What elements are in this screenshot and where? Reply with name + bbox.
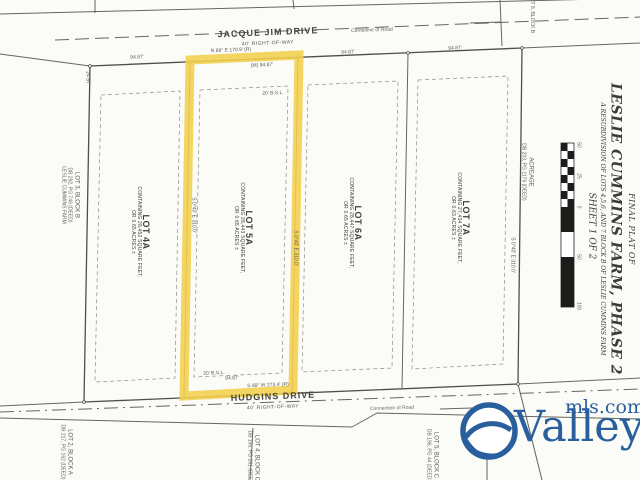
bearing-divider-left: S 0°40' E 310.0' xyxy=(190,197,195,233)
pin-icon xyxy=(521,47,524,50)
lot-7a-label: LOT 7A CONTAINING 27,434 SQUARE FEET, OR… xyxy=(450,172,470,263)
parcel-southwest-name: LOT 2, BLOCK A xyxy=(65,424,72,479)
road-top-south-edge-west xyxy=(0,54,90,66)
lot-6a-area: CONTAINING 28,447 SQUARE FEET, xyxy=(347,177,352,268)
parcel-southwest-deed: DB 217, PG 162 (DEED) xyxy=(59,424,65,479)
parcel-east-acreage: ACREAGE DB 203, PG 1179 (DEED) xyxy=(520,143,533,200)
parcel-east-name: ACREAGE xyxy=(526,143,533,200)
dim-top-lot5a-measured: (M) 94.87' xyxy=(251,63,274,69)
pin-icon xyxy=(517,383,520,386)
lot-5a-area: CONTAINING 28,443 SQUARE FEET, xyxy=(238,182,243,273)
pin-icon xyxy=(407,52,410,55)
parcel-west: LOT 3, BLOCK B DB 292, PG 746 (DEED) LES… xyxy=(60,166,79,224)
road-top-north-edge xyxy=(0,0,640,14)
parcel-northeast-name: LOT 8, BLOCK B xyxy=(529,0,535,33)
parcel-south-east: LOT 5, BLOCK C DB 196, PG 44 (DEED) xyxy=(425,429,438,480)
dim-west-edge-tick: 24.97' xyxy=(84,71,89,84)
lot-6a-label: LOT 6A CONTAINING 28,447 SQUARE FEET, OR… xyxy=(342,177,362,268)
title-final-plat-of: FINAL PLAT OF xyxy=(627,193,635,265)
setback-label-top: 20' B.S.L. xyxy=(262,91,284,97)
lot-7a-name: LOT 7A xyxy=(461,172,470,263)
dim-bottom-lot5a-len: 94.87' xyxy=(225,376,239,382)
setback-label-bottom: 20' B.S.L. xyxy=(203,371,225,377)
bearing-divider-right: S 0°40' E 310.0' xyxy=(292,230,297,266)
lot-5a-label: LOT 5A CONTAINING 28,443 SQUARE FEET, OR… xyxy=(233,182,253,273)
title-subdivision-name: LESLIE CUMMINS FARM, PHASE 2 xyxy=(608,83,623,375)
scale-tick-4: 100 xyxy=(575,302,580,310)
parcel-south-mid-deed: DB 195, PG 281 (DEED) xyxy=(246,430,252,480)
plat-image: JACQUE JIM DRIVE 40' RIGHT-OF-WAY Center… xyxy=(0,0,640,480)
parcel-south-east-deed: DB 196, PG 44 (DEED) xyxy=(425,429,431,480)
north-stub-2 xyxy=(293,0,294,9)
road-bottom-north-edge-west xyxy=(0,402,84,406)
dim-top-lot7a: 94.87' xyxy=(448,46,462,52)
bearing-east-boundary: S 0°40' E 310.0' xyxy=(509,237,514,273)
lot-5a-name: LOT 5A xyxy=(244,182,253,273)
valleymls-logo-suffix[interactable]: mls.com xyxy=(565,398,640,417)
north-stub-3 xyxy=(500,0,502,46)
road-bottom-south-edge-west xyxy=(0,418,352,427)
parcel-west-deed: DB 292, PG 746 (DEED) xyxy=(66,166,72,224)
divider-lot6a-lot7a xyxy=(402,53,408,389)
road-top-south-edge-east xyxy=(522,43,640,48)
parcel-northeast: LOT 8, BLOCK B xyxy=(529,0,535,33)
dim-top-lot4a: 94.87' xyxy=(130,55,144,61)
parcel-south-east-name: LOT 5, BLOCK C xyxy=(431,429,438,480)
lot-6a-name: LOT 6A xyxy=(353,177,362,268)
parcel-west-extra: LESLIE CUMMINS FARM xyxy=(60,166,66,224)
parcel-south-mid: LOT 4, BLOCK C DB 195, PG 281 (DEED) xyxy=(246,430,259,480)
parcel-west-name: LOT 3, BLOCK B xyxy=(72,166,79,224)
pin-icon xyxy=(89,65,92,68)
dim-top-lot6a: 94.87' xyxy=(341,50,355,56)
south-tick-line xyxy=(440,408,472,409)
road-bottom-north-edge-east xyxy=(518,378,640,384)
scale-tick-3: 50 xyxy=(575,254,580,260)
pin-icon xyxy=(83,401,86,404)
parcel-southwest: LOT 2, BLOCK A DB 217, PG 162 (DEED) xyxy=(59,424,72,479)
scale-bar xyxy=(561,143,574,307)
parcel-south-mid-name: LOT 4, BLOCK C xyxy=(252,430,259,480)
title-sheet-number: SHEET 1 OF 2 xyxy=(586,193,595,260)
scale-tick-0: 50 xyxy=(575,142,580,148)
title-resubdivision-note: A RESUBDIVISION OF LOTS 4,5,6, AND 7 BLO… xyxy=(599,102,605,355)
scale-tick-1: 25 xyxy=(575,173,580,179)
scale-tick-2: 0 xyxy=(575,206,580,209)
parcel-east-deed: DB 203, PG 1179 (DEED) xyxy=(520,143,526,200)
lot-4a-name: LOT 4A xyxy=(141,186,150,277)
lot-4a-area: CONTAINING 28,452 SQUARE FEET, xyxy=(135,186,140,277)
lot-4a-label: LOT 4A CONTAINING 28,452 SQUARE FEET, OR… xyxy=(130,186,150,277)
lot-7a-area: CONTAINING 27,434 SQUARE FEET, xyxy=(455,172,460,263)
valleymls-logo-icon[interactable] xyxy=(463,405,515,457)
road-top-centerline xyxy=(55,17,640,40)
